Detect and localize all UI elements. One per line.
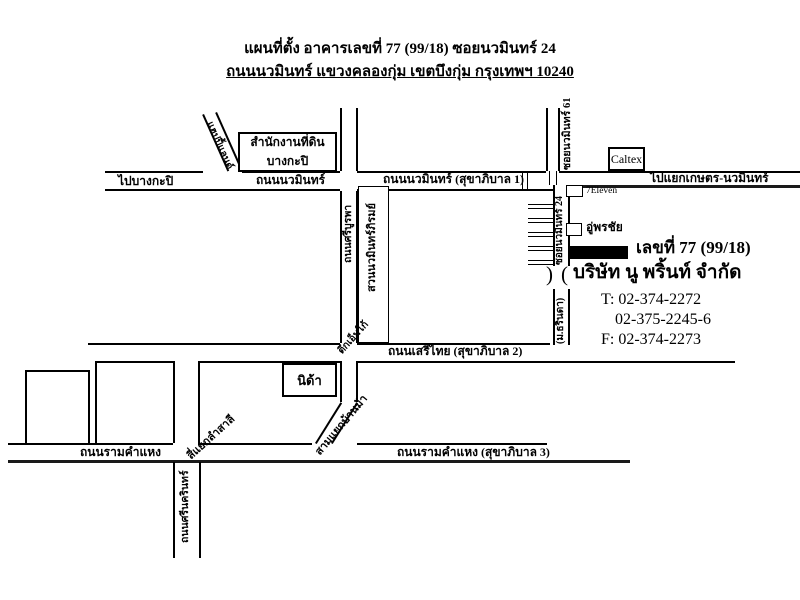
block-edge (95, 361, 97, 443)
tick-line (527, 173, 528, 189)
tick-line (528, 222, 553, 223)
road-line (558, 108, 560, 171)
tick-line (528, 232, 553, 233)
caltex-label: Caltex (611, 152, 642, 167)
road-line (546, 108, 548, 171)
road-line (340, 191, 342, 343)
land-office-label-line2: บางกะปิ (267, 152, 309, 171)
landmark-caltex: Caltex (608, 147, 645, 171)
road-label-ramkhamhaeng: ถนนรามคำแหง (80, 446, 161, 459)
tick-line (522, 173, 523, 189)
7eleven-label: 7Eleven (586, 186, 617, 196)
park-label: สวนนวมินทร์ภิรมย์ (366, 203, 378, 292)
road-label-sri-burapha: ถนนศรีบูรพา (343, 205, 355, 263)
road-label-nawamin: ถนนนวมินทร์ (256, 174, 325, 187)
road-label-to-kaset: ไปแยกเกษตร-นวมินทร์ (650, 172, 769, 185)
tick-line (528, 218, 553, 219)
road-line (95, 361, 173, 363)
road-line (357, 361, 735, 363)
tick-line (528, 204, 553, 205)
road-line (105, 189, 340, 191)
road-line (199, 462, 201, 558)
road-line (173, 361, 175, 443)
nida-label: นิด้า (297, 370, 322, 391)
garage-label: อู่พรชัย (586, 221, 623, 234)
tick-line (556, 171, 557, 185)
road-label-seri-thai: ถนนเสรีไทย (สุขาภิบาล 2) (388, 345, 522, 358)
road-line (340, 361, 342, 402)
destination-company-name: บริษัท นู พริ้นท์ จำกัด (573, 263, 741, 284)
map-canvas: แผนที่ตั้ง อาคารเลขที่ 77 (99/18) ซอยนวม… (0, 0, 800, 600)
landmark-garage-box (566, 223, 582, 236)
road-line (88, 343, 340, 345)
road-label-soi-nawamin-24: ซอยนวมินทร์ 24 (554, 196, 565, 265)
tick-line (528, 260, 553, 261)
block-edge (25, 370, 27, 443)
tick-line (528, 250, 553, 251)
map-title-line1: แผนที่ตั้ง อาคารเลขที่ 77 (99/18) ซอยนวม… (0, 36, 800, 60)
destination-address: เลขที่ 77 (99/18) (636, 239, 751, 258)
road-line (8, 460, 630, 463)
landmark-7eleven-box (566, 185, 583, 197)
landmark-nida: นิด้า (282, 363, 337, 397)
road-label-srinakarin: ถนนศรีนครินทร์ (180, 470, 192, 543)
road-label-to-bangkapi: ไปบางกะปิ (118, 175, 173, 188)
bridge-mark-left: ) (546, 264, 553, 285)
destination-building-marker (568, 246, 628, 259)
tick-line (528, 236, 553, 237)
destination-tel2: 02-375-2245-6 (615, 311, 711, 329)
road-line (105, 171, 203, 173)
landmark-land-office: สำนักงานที่ดิน บางกะปิ (238, 132, 337, 172)
land-office-label-line1: สำนักงานที่ดิน (250, 133, 324, 152)
bridge-mark-right: ( (561, 264, 568, 285)
map-title-line2: ถนนนวมินทร์ แขวงคลองกุ่ม เขตบึงกุ่ม กรุง… (0, 59, 800, 83)
road-label-ramkhamhaeng-sukha3: ถนนรามคำแหง (สุขาภิบาล 3) (397, 446, 550, 459)
destination-tel1: T: 02-374-2272 (601, 291, 701, 309)
tick-line (528, 246, 553, 247)
road-label-nawamin-sukha1: ถนนนวมินทร์ (สุขาภิบาล 1) (383, 173, 524, 186)
road-label-village: (ม.ธรินดา) (555, 298, 566, 344)
road-line (356, 108, 358, 171)
road-line (198, 443, 312, 445)
road-line (173, 462, 175, 558)
destination-fax: F: 02-374-2273 (601, 331, 701, 349)
road-label-soi-nawamin-61: ซอยนวมินทร์ 61 (562, 98, 574, 170)
road-line (198, 361, 200, 443)
road-line (568, 289, 570, 345)
tick-line (528, 208, 553, 209)
block-edge (25, 370, 88, 372)
block-edge (88, 370, 90, 443)
tick-line (549, 171, 550, 185)
road-line (340, 108, 342, 171)
junction-label-lam-sali: สี่แยกลำสาลี (185, 413, 237, 462)
